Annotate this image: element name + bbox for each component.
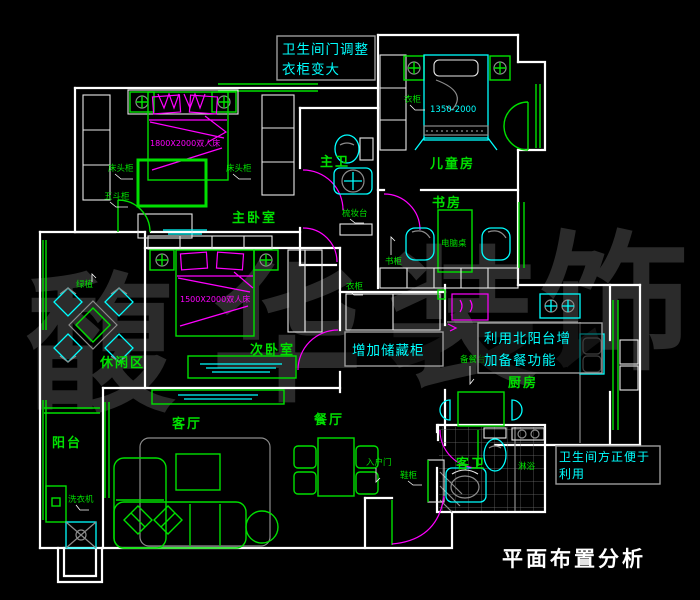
- annotation-text: 卫生间方正便于: [559, 449, 650, 464]
- room-label-study: 书房: [432, 195, 462, 211]
- washer-cross: [66, 522, 96, 548]
- wardrobe-right: [262, 95, 294, 195]
- bookcase-label: 书柜: [385, 256, 403, 267]
- dining-chair-se: [356, 472, 378, 494]
- shoe-cabinet-leader: [408, 481, 422, 485]
- room-label-kitchen: 厨房: [508, 375, 538, 391]
- sofa-pillow-b: [154, 506, 182, 534]
- chest-leader: [110, 202, 128, 207]
- room-master-bath: 主卫 梳妆台: [303, 135, 373, 262]
- master-bed-label: 1800X2000双人床: [150, 138, 220, 148]
- desk-label: 电脑桌: [441, 238, 467, 249]
- nightstand-right-label: 床头柜: [226, 163, 252, 174]
- drawing-title: 平面布置分析: [502, 547, 646, 571]
- annotation-text: 利用北阳台增: [484, 331, 571, 347]
- washer-leader: [76, 505, 89, 510]
- dining-chair-sw: [294, 472, 316, 494]
- annotation-text: 加备餐功能: [484, 352, 557, 369]
- bay-window-glass: [536, 84, 540, 148]
- plant-label: 绿植: [76, 279, 94, 290]
- room-dining: 餐厅 入户门 鞋柜: [294, 412, 444, 545]
- balcony-mat: [46, 486, 66, 522]
- room-label-kids: 儿童房: [429, 156, 475, 172]
- kids-door-arc: [504, 102, 528, 150]
- sofa-pillow-a: [124, 506, 152, 534]
- wardrobe-left: [83, 95, 110, 200]
- chest-label: 五斗柜: [104, 191, 130, 202]
- annotation-text: 增加储藏柜: [352, 343, 425, 359]
- nightstand-right-leader: [233, 174, 251, 179]
- toilet-tank: [360, 138, 373, 160]
- kids-wardrobe: [380, 55, 406, 150]
- side-table: [246, 511, 278, 543]
- annotation-bath-door: 卫生间门调整 衣柜变大: [277, 36, 375, 80]
- room-master-bedroom: 1800X2000双人床 床头柜 床头柜 五斗柜 主卧室: [83, 90, 294, 249]
- porch-edge: [365, 512, 452, 548]
- kids-wardrobe-label: 衣柜: [404, 94, 422, 105]
- dresser-leader: [350, 219, 364, 223]
- room-kids: 1350-2000 衣柜 儿童房: [380, 55, 528, 172]
- annotation-storage: 增加储藏柜: [345, 332, 443, 366]
- kids-wardrobe-leader: [410, 105, 425, 110]
- room-label-second: 次卧室: [250, 342, 295, 358]
- annotation-guest-bath: 卫生间方正便于 利用: [556, 446, 660, 484]
- study-door-arc: [384, 194, 420, 230]
- room-balcony: 洗衣机 阳台: [46, 435, 96, 548]
- nightstand-left-label: 床头柜: [108, 163, 134, 174]
- room-label-balcony: 阳台: [52, 435, 82, 451]
- second-pillow-left: [180, 252, 207, 270]
- wall-bottom: [40, 498, 365, 548]
- dresser-table: [340, 224, 372, 235]
- balcony-mat-inner: [52, 498, 60, 506]
- dining-table: [318, 438, 354, 496]
- dresser-label: 梳妆台: [342, 208, 368, 219]
- annotation-text: 衣柜变大: [282, 62, 340, 78]
- kids-pillow: [434, 60, 478, 76]
- sofa-bottom-seat: [114, 502, 246, 548]
- steps-outline: [58, 548, 102, 582]
- annotation-text: 卫生间门调整: [282, 42, 369, 58]
- shower-label: 淋浴: [518, 461, 536, 472]
- dining-chair-nw: [294, 446, 316, 468]
- kids-bed-label: 1350-2000: [430, 105, 476, 115]
- room-label-dining: 餐厅: [313, 412, 344, 428]
- wardrobe-left-dividers: [83, 130, 110, 165]
- kids-wardrobe-dividers: [380, 88, 406, 120]
- washer-label: 洗衣机: [68, 494, 94, 505]
- room-label-living: 客厅: [172, 416, 202, 432]
- nightstand-left-leader: [115, 174, 133, 179]
- wardrobe-right-dividers: [262, 128, 294, 162]
- hall-wardrobe-label: 衣柜: [346, 281, 364, 292]
- room-label-guestbath: 客卫: [456, 456, 486, 472]
- second-bed-label: 1500X2000双人床: [180, 294, 250, 304]
- room-label-master: 主卧室: [232, 210, 277, 226]
- coffee-table: [176, 454, 220, 490]
- annotation-north-balcony: 利用北阳台增 加备餐功能: [478, 323, 602, 373]
- room-guest-bath: 客卫 淋浴: [439, 427, 544, 511]
- room-label-leisure: 休闲区: [99, 355, 145, 371]
- floorplan-canvas: 馥 华 装 饰: [0, 0, 700, 600]
- shoe-cabinet-label: 鞋柜: [400, 470, 418, 481]
- annotation-text: 利用: [559, 467, 585, 481]
- entry-door-label: 入户门: [366, 457, 392, 468]
- sink-cross: [344, 172, 362, 190]
- masterbath-door-arc: [303, 170, 343, 210]
- toilet-detail: [340, 143, 354, 145]
- master-pillow-left: [152, 95, 180, 114]
- bay-window-kids: [518, 62, 545, 150]
